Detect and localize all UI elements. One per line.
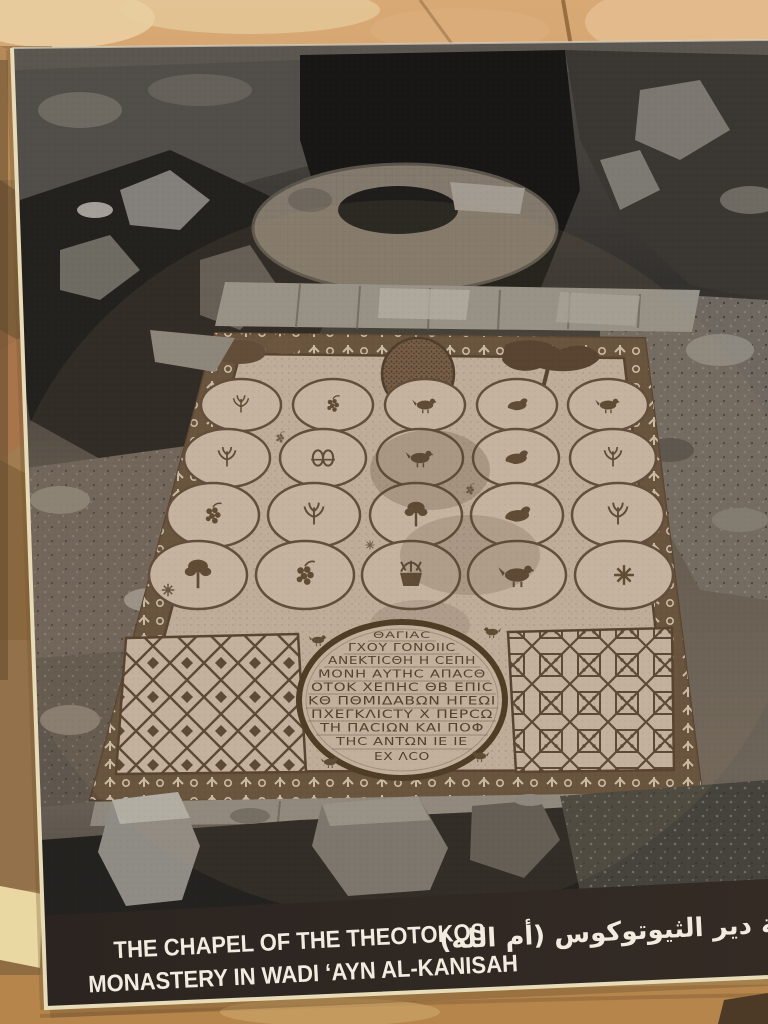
scene-canvas: ΘΑΓΙΑC ΓΧΟΥ ΓΟΝΟΙΙC ΑΝΕΚΤΙCΘΗ Η CΕΠΗ ΜΟΝ… — [0, 0, 768, 1024]
sign-panel: ΘΑΓΙΑC ΓΧΟΥ ΓΟΝΟΙΙC ΑΝΕΚΤΙCΘΗ Η CΕΠΗ ΜΟΝ… — [0, 35, 768, 1020]
scene-photo: ΘΑΓΙΑC ΓΧΟΥ ΓΟΝΟΙΙC ΑΝΕΚΤΙCΘΗ Η CΕΠΗ ΜΟΝ… — [0, 0, 768, 1024]
wall-pale-band — [0, 886, 42, 968]
excavation-photograph: ΘΑΓΙΑC ΓΧΟΥ ΓΟΝΟΙΙC ΑΝΕΚΤΙCΘΗ Η CΕΠΗ ΜΟΝ… — [0, 35, 768, 1020]
